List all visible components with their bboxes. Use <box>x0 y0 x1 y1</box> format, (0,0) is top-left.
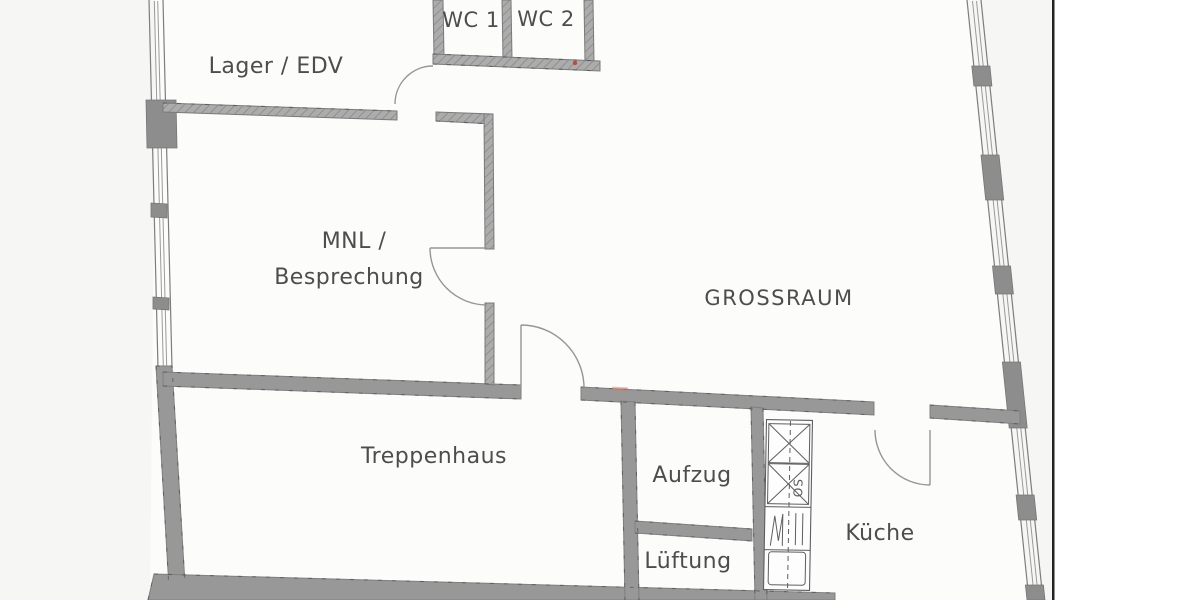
label-grossraum: GROSSRAUM <box>704 286 853 310</box>
page-margin-white <box>1055 0 1200 600</box>
wall-wc-divider <box>502 0 512 59</box>
label-lueftung: Lüftung <box>644 549 731 574</box>
kitchen-unit: OS <box>764 420 813 591</box>
wall-pier-right-1 <box>972 66 992 86</box>
label-mnl-line1: MNL / <box>322 229 387 254</box>
wall-mnl-east-lower <box>485 303 494 385</box>
wall-mnl-east-upper <box>484 114 494 249</box>
wall-pier-right-3 <box>993 266 1014 294</box>
red-mark-wc <box>573 61 577 65</box>
kitchen-os-label: OS <box>791 478 805 497</box>
wall-pier-right-5 <box>1016 495 1037 520</box>
floor-plan: OS WC 1 WC 2 Lager / EDV MNL / Besprechu… <box>0 0 1200 600</box>
window-mullion-left-1 <box>151 203 167 218</box>
page-edge-line <box>1052 0 1055 600</box>
wall-pier-right-6 <box>1025 585 1045 600</box>
label-wc1: WC 1 <box>442 8 499 32</box>
floor-plan-page: OS WC 1 WC 2 Lager / EDV MNL / Besprechu… <box>0 0 1200 600</box>
label-aufzug: Aufzug <box>652 463 731 488</box>
label-wc2: WC 2 <box>517 7 574 31</box>
wall-wc2-east <box>584 0 594 62</box>
building-floor <box>150 0 1029 600</box>
label-mnl-line2: Besprechung <box>274 265 424 290</box>
window-mullion-left-2 <box>153 297 169 310</box>
red-mark-wall <box>612 387 628 392</box>
label-treppenhaus: Treppenhaus <box>360 444 507 469</box>
label-lager-edv: Lager / EDV <box>209 54 344 79</box>
label-kueche: Küche <box>845 521 914 546</box>
